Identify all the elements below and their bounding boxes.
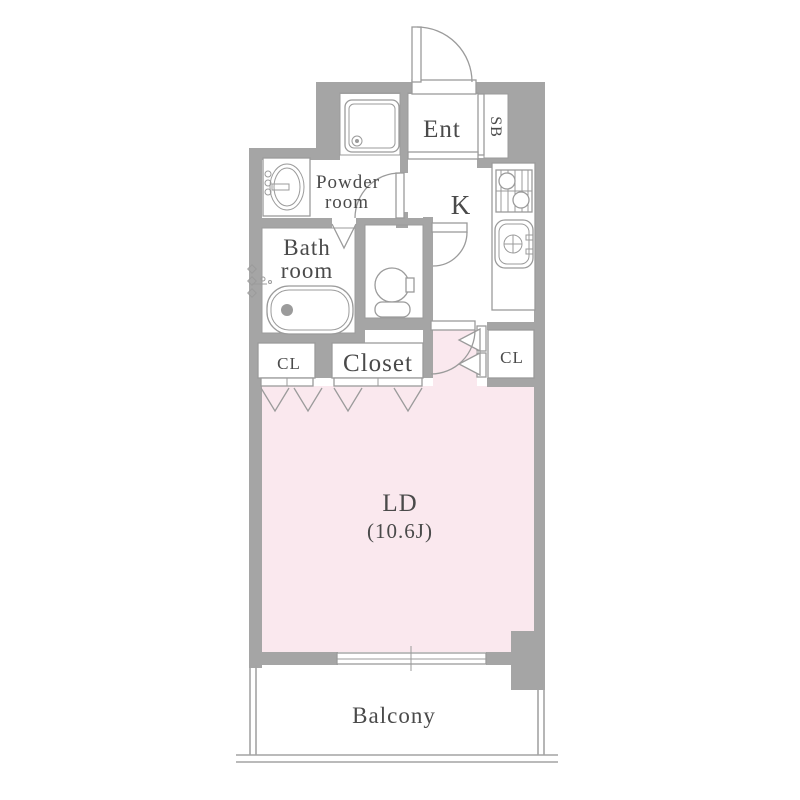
label-closet: Closet — [343, 350, 413, 377]
label-sb: SB — [487, 116, 504, 138]
kitchen-sink-icon — [495, 220, 533, 268]
label-balcony: Balcony — [352, 703, 436, 728]
entrance-door-arc — [417, 27, 472, 82]
washbasin-icon — [263, 158, 310, 216]
ent-sb-divider — [478, 94, 484, 155]
kitchen-counter — [492, 163, 535, 310]
label-ld: LD — [382, 490, 417, 517]
genkan-step-line — [408, 152, 478, 159]
entrance-door-leaf — [412, 27, 421, 82]
wall-bottom-left — [249, 652, 338, 665]
wall-bottom-right — [486, 652, 513, 665]
wall-toilet-top — [356, 218, 423, 225]
wall-toilet-bottom — [365, 318, 433, 330]
label-bath-line2: room — [281, 258, 334, 283]
label-cl-left: CL — [277, 354, 301, 373]
label-cl-right: CL — [500, 348, 524, 367]
wall-top-left — [330, 82, 412, 94]
label-ent: Ent — [423, 116, 461, 143]
wall-below-right-cl — [487, 378, 545, 387]
floor-plan: Ent SB Powder room K Bath room CL Closet… — [0, 0, 800, 800]
stove-icon — [496, 170, 532, 212]
wall-bath-toilet — [355, 225, 365, 333]
wall-top-right — [476, 82, 508, 94]
ld-door-leaf — [431, 321, 475, 330]
label-kitchen: K — [451, 190, 472, 220]
wall-right-block — [508, 82, 545, 168]
hall-door-icon — [432, 223, 467, 266]
toilet-icon — [375, 268, 414, 317]
powder-door-leaf — [396, 173, 404, 218]
washer-pan-icon — [345, 100, 399, 152]
wall-right — [534, 168, 545, 637]
entrance-door-icon — [412, 27, 476, 94]
label-bath-line1: Bath — [283, 235, 330, 260]
wall-ent-hall — [400, 93, 408, 173]
hall-door-arc — [433, 232, 467, 266]
wall-toilet-right — [423, 217, 433, 378]
wall-closet-divider — [315, 343, 332, 378]
label-powder-line1: Powder — [316, 172, 380, 193]
wall-above-right-cl — [487, 322, 545, 330]
label-powder-line2: room — [325, 192, 369, 213]
label-ld-size: (10.6J) — [367, 519, 433, 543]
wall-powder-bath — [258, 218, 332, 228]
floor-plan-drawing: Ent SB Powder room K Bath room CL Closet… — [0, 0, 800, 800]
hall-door-leaf — [432, 223, 467, 232]
pillar-bottom-right — [511, 631, 545, 690]
